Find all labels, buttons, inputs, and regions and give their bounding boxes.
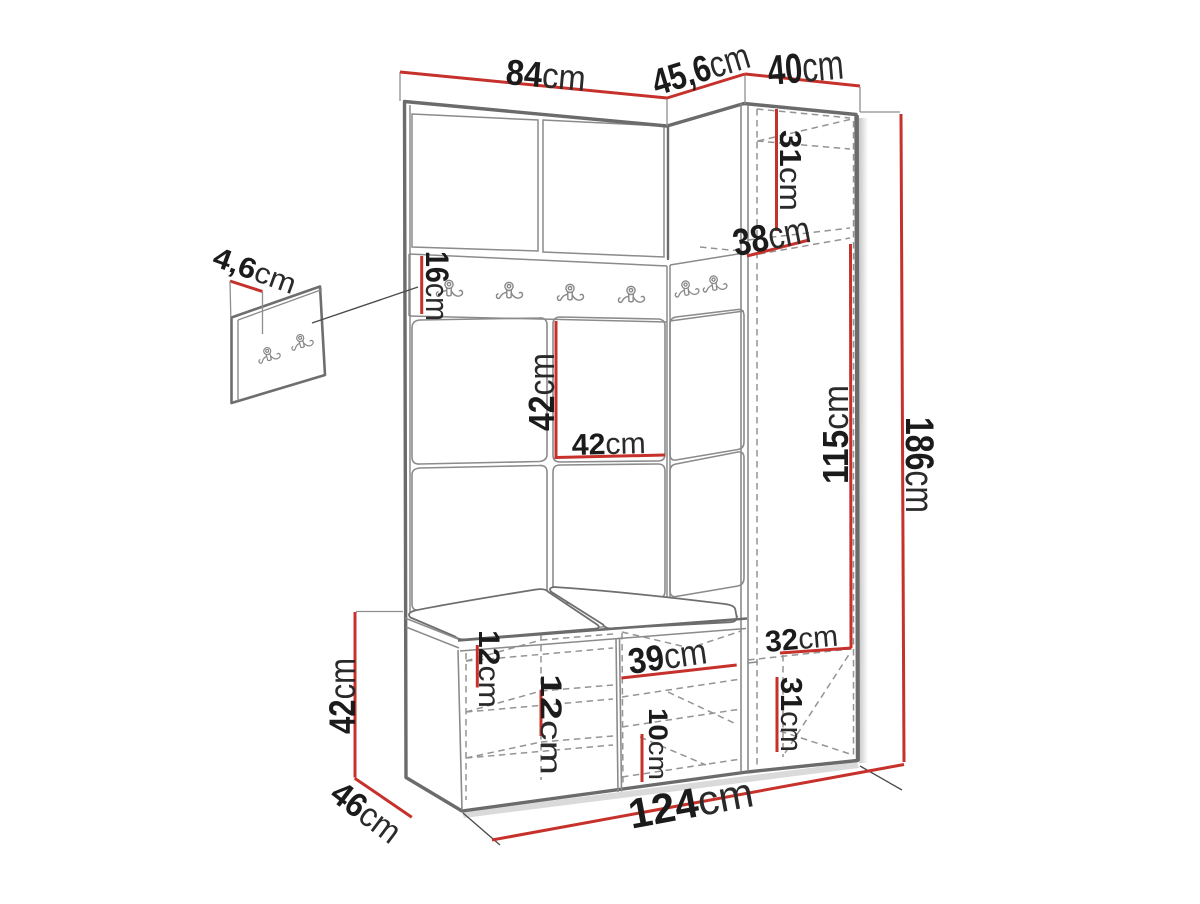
svg-text:84cm: 84cm	[504, 51, 587, 99]
svg-text:31cm: 31cm	[773, 130, 808, 211]
svg-text:32cm: 32cm	[764, 620, 840, 659]
svg-text:31cm: 31cm	[774, 677, 809, 752]
svg-text:42cm: 42cm	[521, 353, 562, 431]
svg-text:12cm: 12cm	[534, 674, 567, 775]
svg-text:16cm: 16cm	[419, 251, 455, 321]
svg-text:12cm: 12cm	[472, 630, 505, 708]
svg-text:42cm: 42cm	[322, 658, 363, 734]
svg-text:42cm: 42cm	[571, 427, 646, 462]
svg-text:115cm: 115cm	[815, 385, 856, 484]
svg-text:10cm: 10cm	[643, 708, 673, 780]
svg-text:186cm: 186cm	[897, 417, 941, 513]
svg-text:40cm: 40cm	[766, 41, 846, 94]
